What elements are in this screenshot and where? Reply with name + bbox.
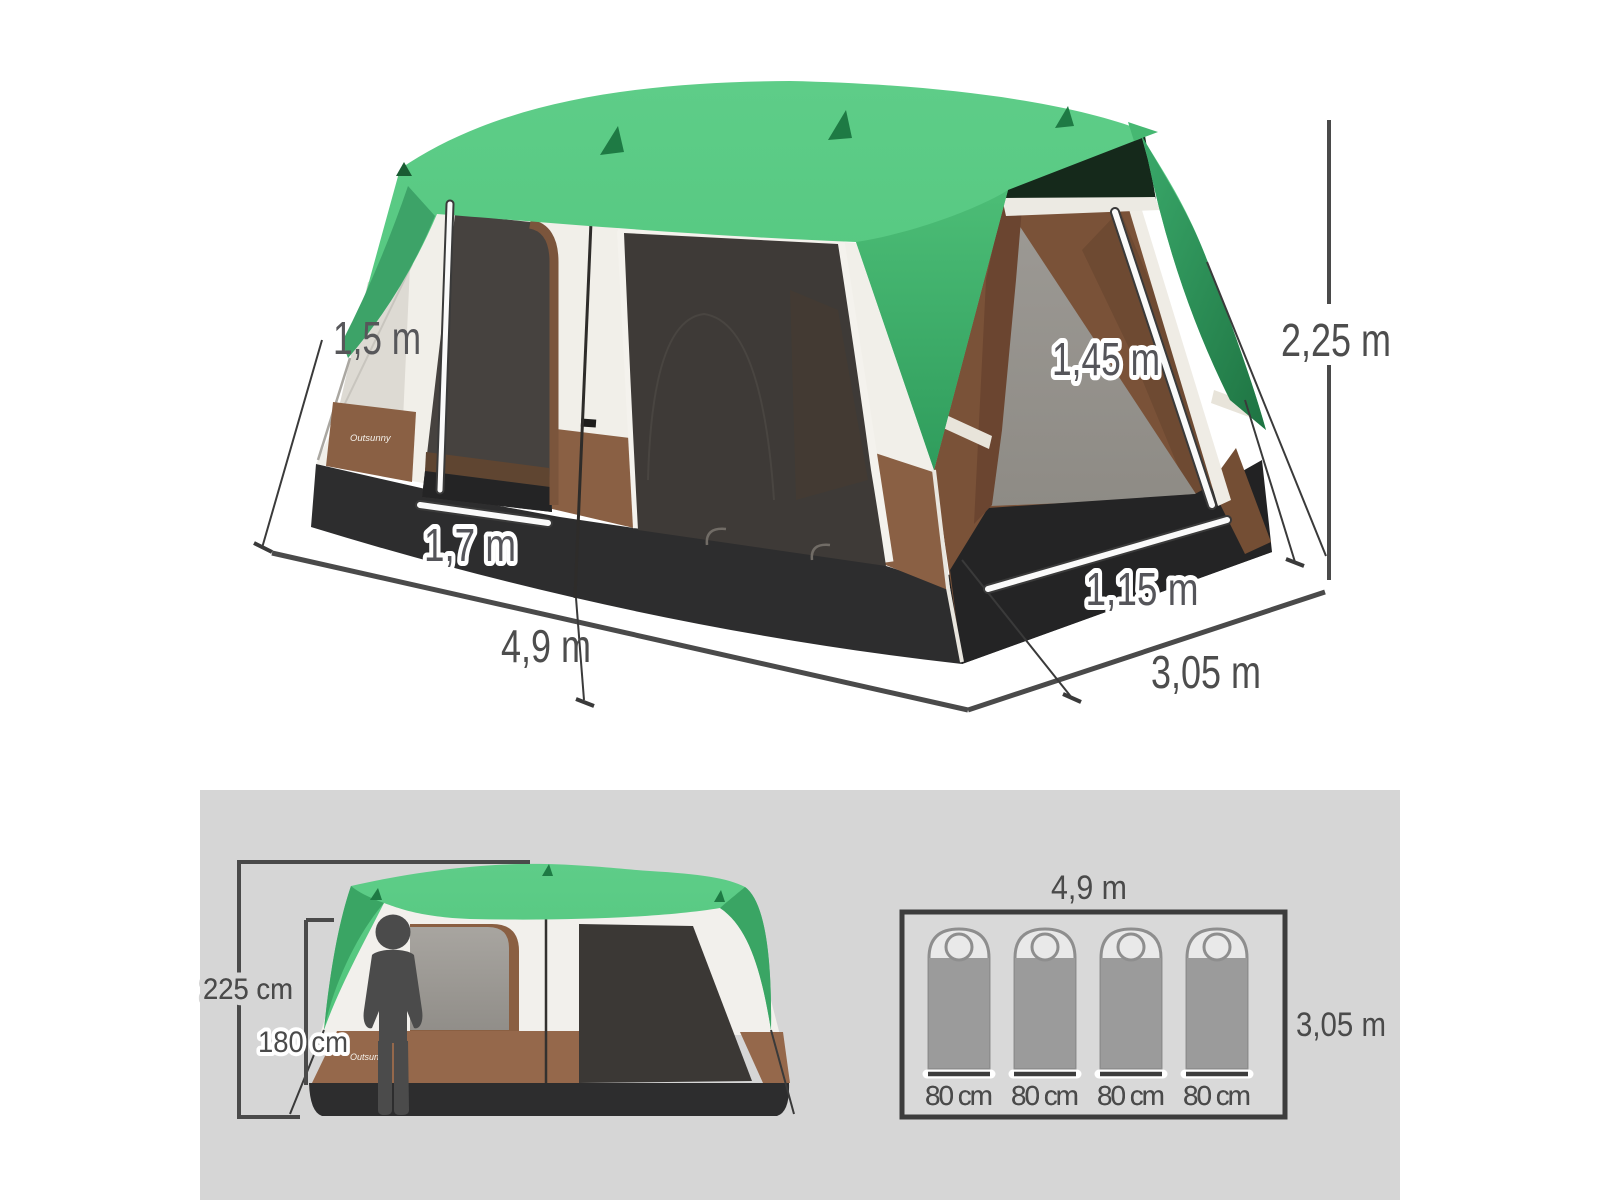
svg-text:2,25 m: 2,25 m <box>1281 314 1391 366</box>
svg-text:Outsunny: Outsunny <box>350 433 392 444</box>
svg-text:80 cm: 80 cm <box>1011 1080 1079 1111</box>
svg-text:225 cm: 225 cm <box>203 973 293 1006</box>
svg-text:1,7 m: 1,7 m <box>424 519 516 571</box>
svg-text:80 cm: 80 cm <box>1097 1080 1165 1111</box>
svg-text:3,05 m: 3,05 m <box>1151 646 1261 698</box>
svg-text:3,05 m: 3,05 m <box>1296 1006 1386 1044</box>
svg-text:4,9 m: 4,9 m <box>1051 869 1127 907</box>
svg-text:1,45 m: 1,45 m <box>1052 333 1160 385</box>
svg-text:1,15 m: 1,15 m <box>1086 563 1199 615</box>
svg-text:80 cm: 80 cm <box>1183 1080 1251 1111</box>
svg-text:4,9 m: 4,9 m <box>501 620 591 672</box>
svg-text:180 cm: 180 cm <box>258 1026 348 1059</box>
svg-text:1,5 m: 1,5 m <box>333 312 421 364</box>
svg-text:80 cm: 80 cm <box>925 1080 993 1111</box>
